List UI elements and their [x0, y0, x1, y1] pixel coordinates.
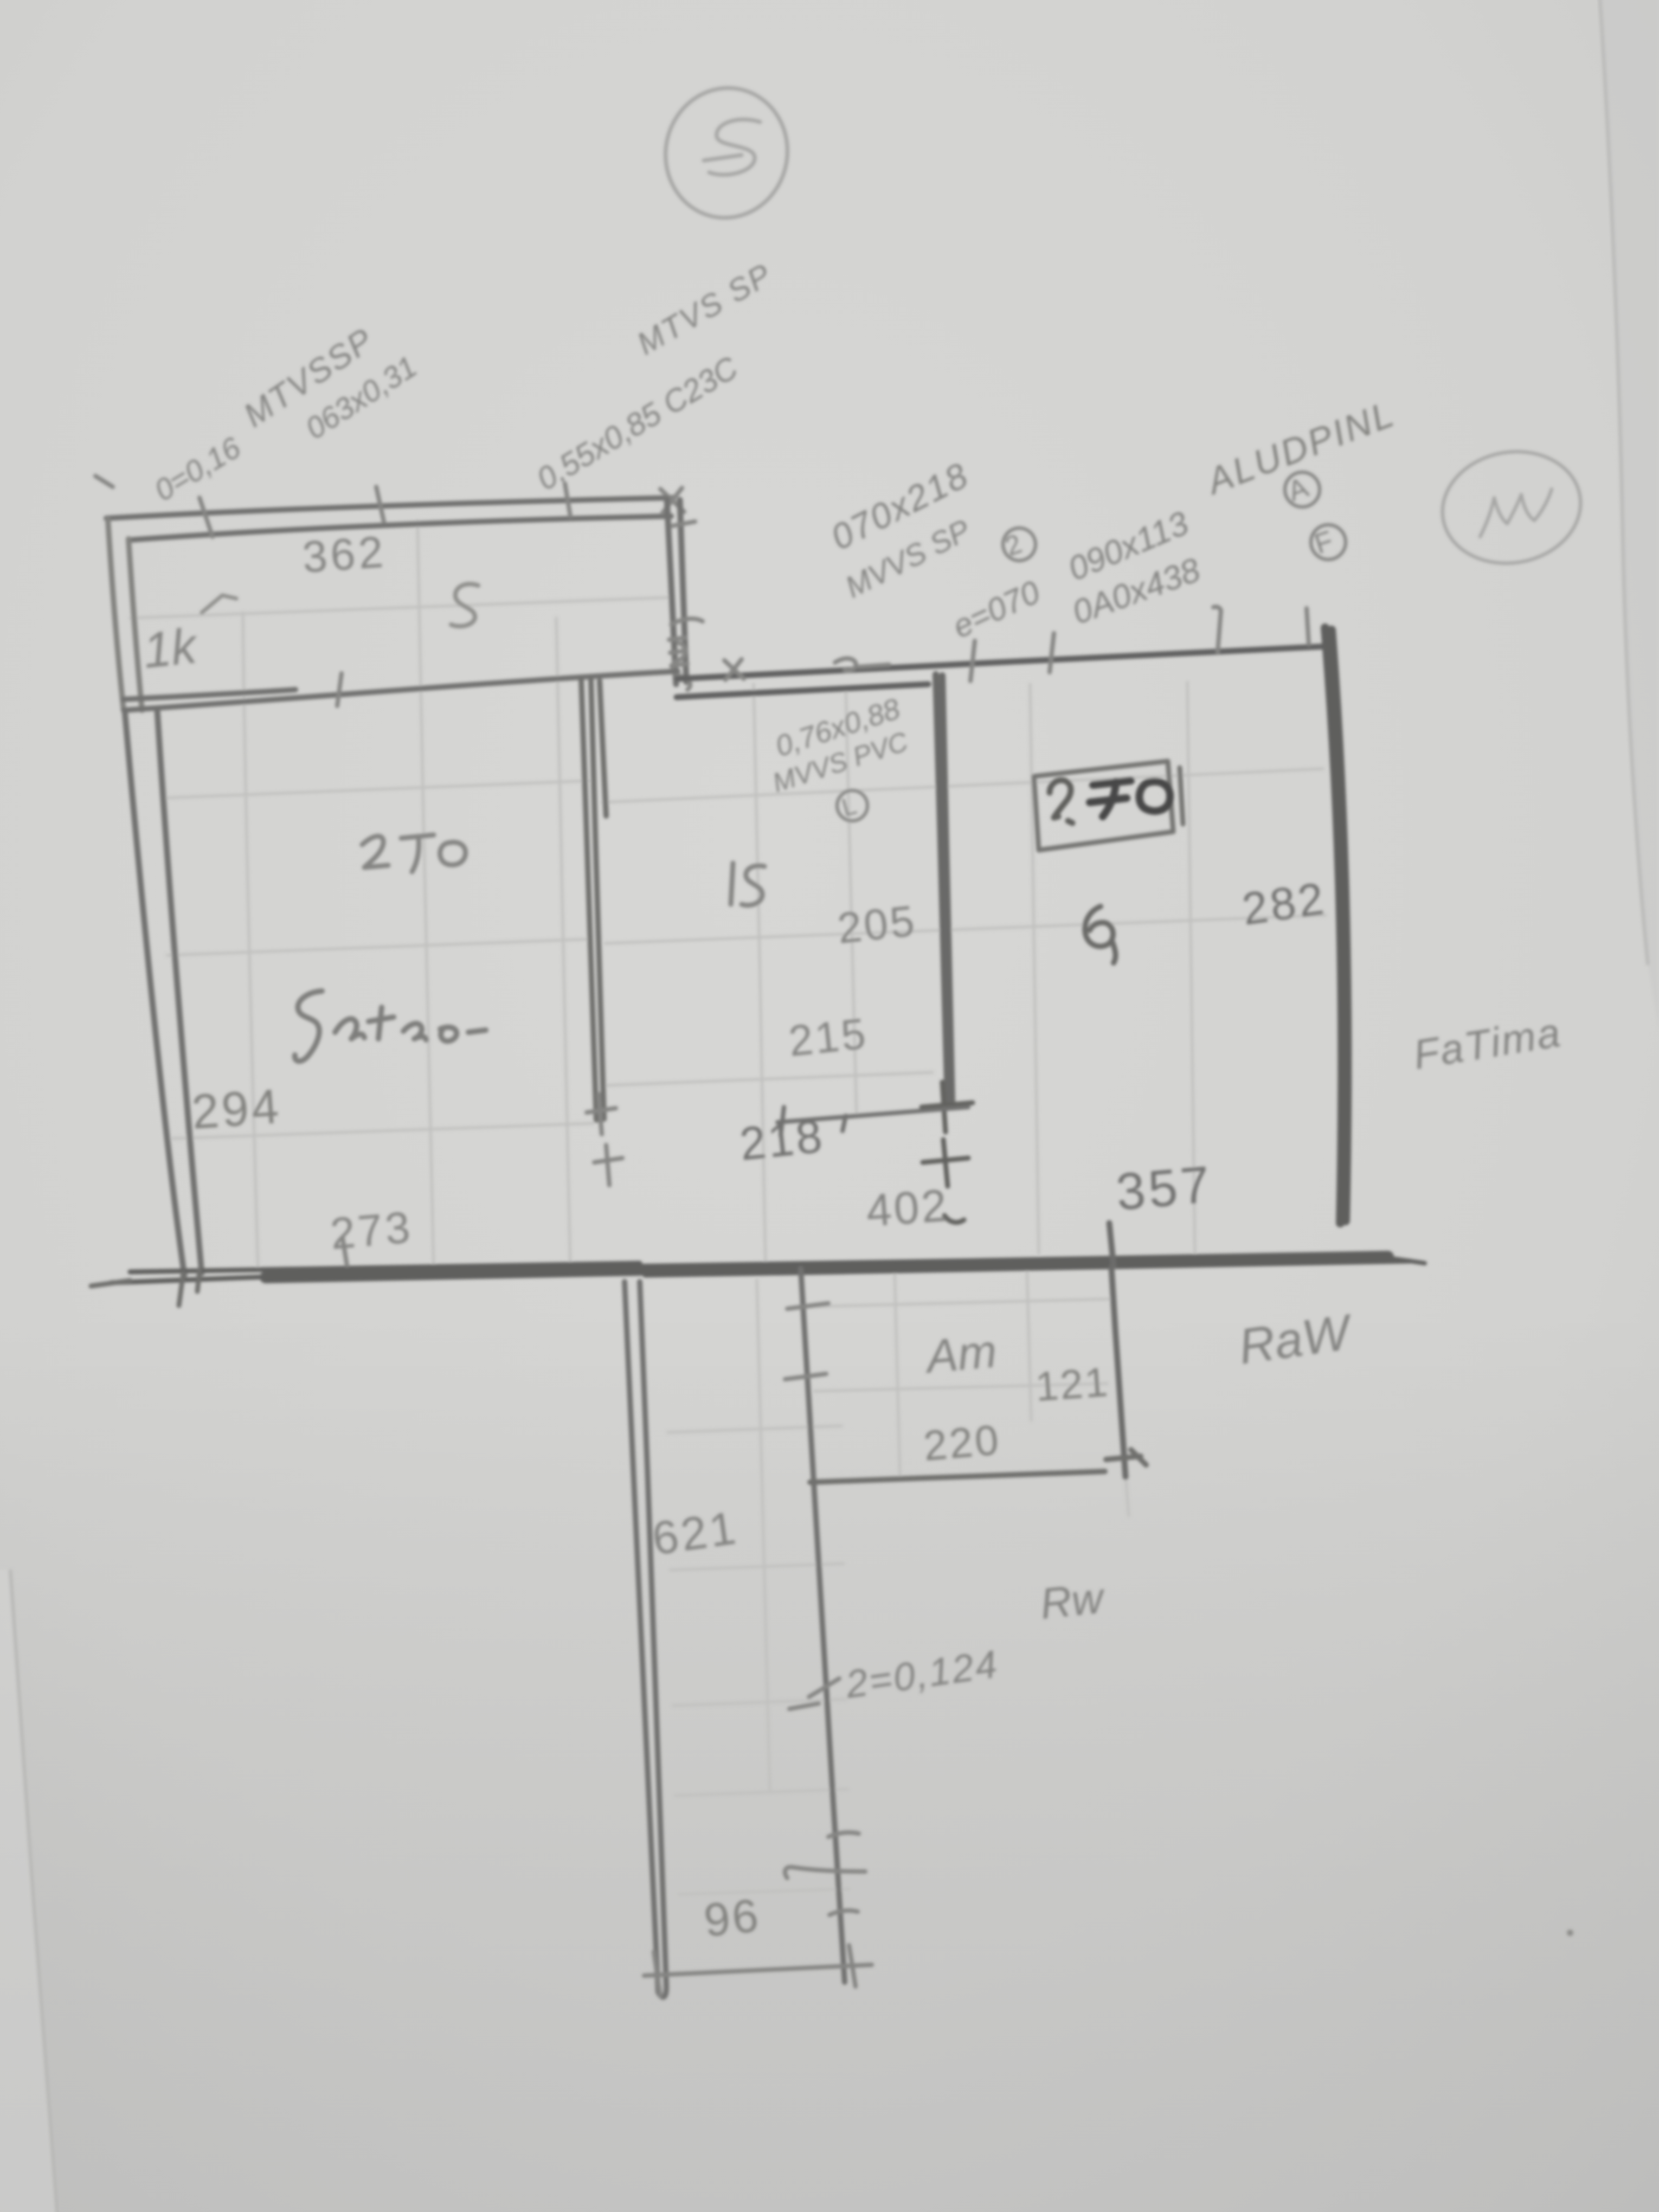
svg-text:402: 402: [865, 1180, 950, 1236]
svg-text:294: 294: [190, 1079, 283, 1140]
svg-text:Am: Am: [922, 1325, 999, 1383]
svg-text:218: 218: [737, 1110, 827, 1171]
svg-text:1k: 1k: [140, 618, 201, 679]
svg-text:220: 220: [922, 1416, 1002, 1470]
svg-text:Rw: Rw: [1038, 1573, 1108, 1628]
svg-text:273: 273: [329, 1203, 415, 1259]
svg-text:205: 205: [835, 896, 918, 953]
svg-text:96: 96: [702, 1889, 763, 1947]
svg-text:215: 215: [786, 1009, 870, 1065]
svg-text:121: 121: [1034, 1359, 1110, 1410]
svg-text:362: 362: [301, 527, 388, 582]
svg-text:357: 357: [1114, 1155, 1216, 1221]
